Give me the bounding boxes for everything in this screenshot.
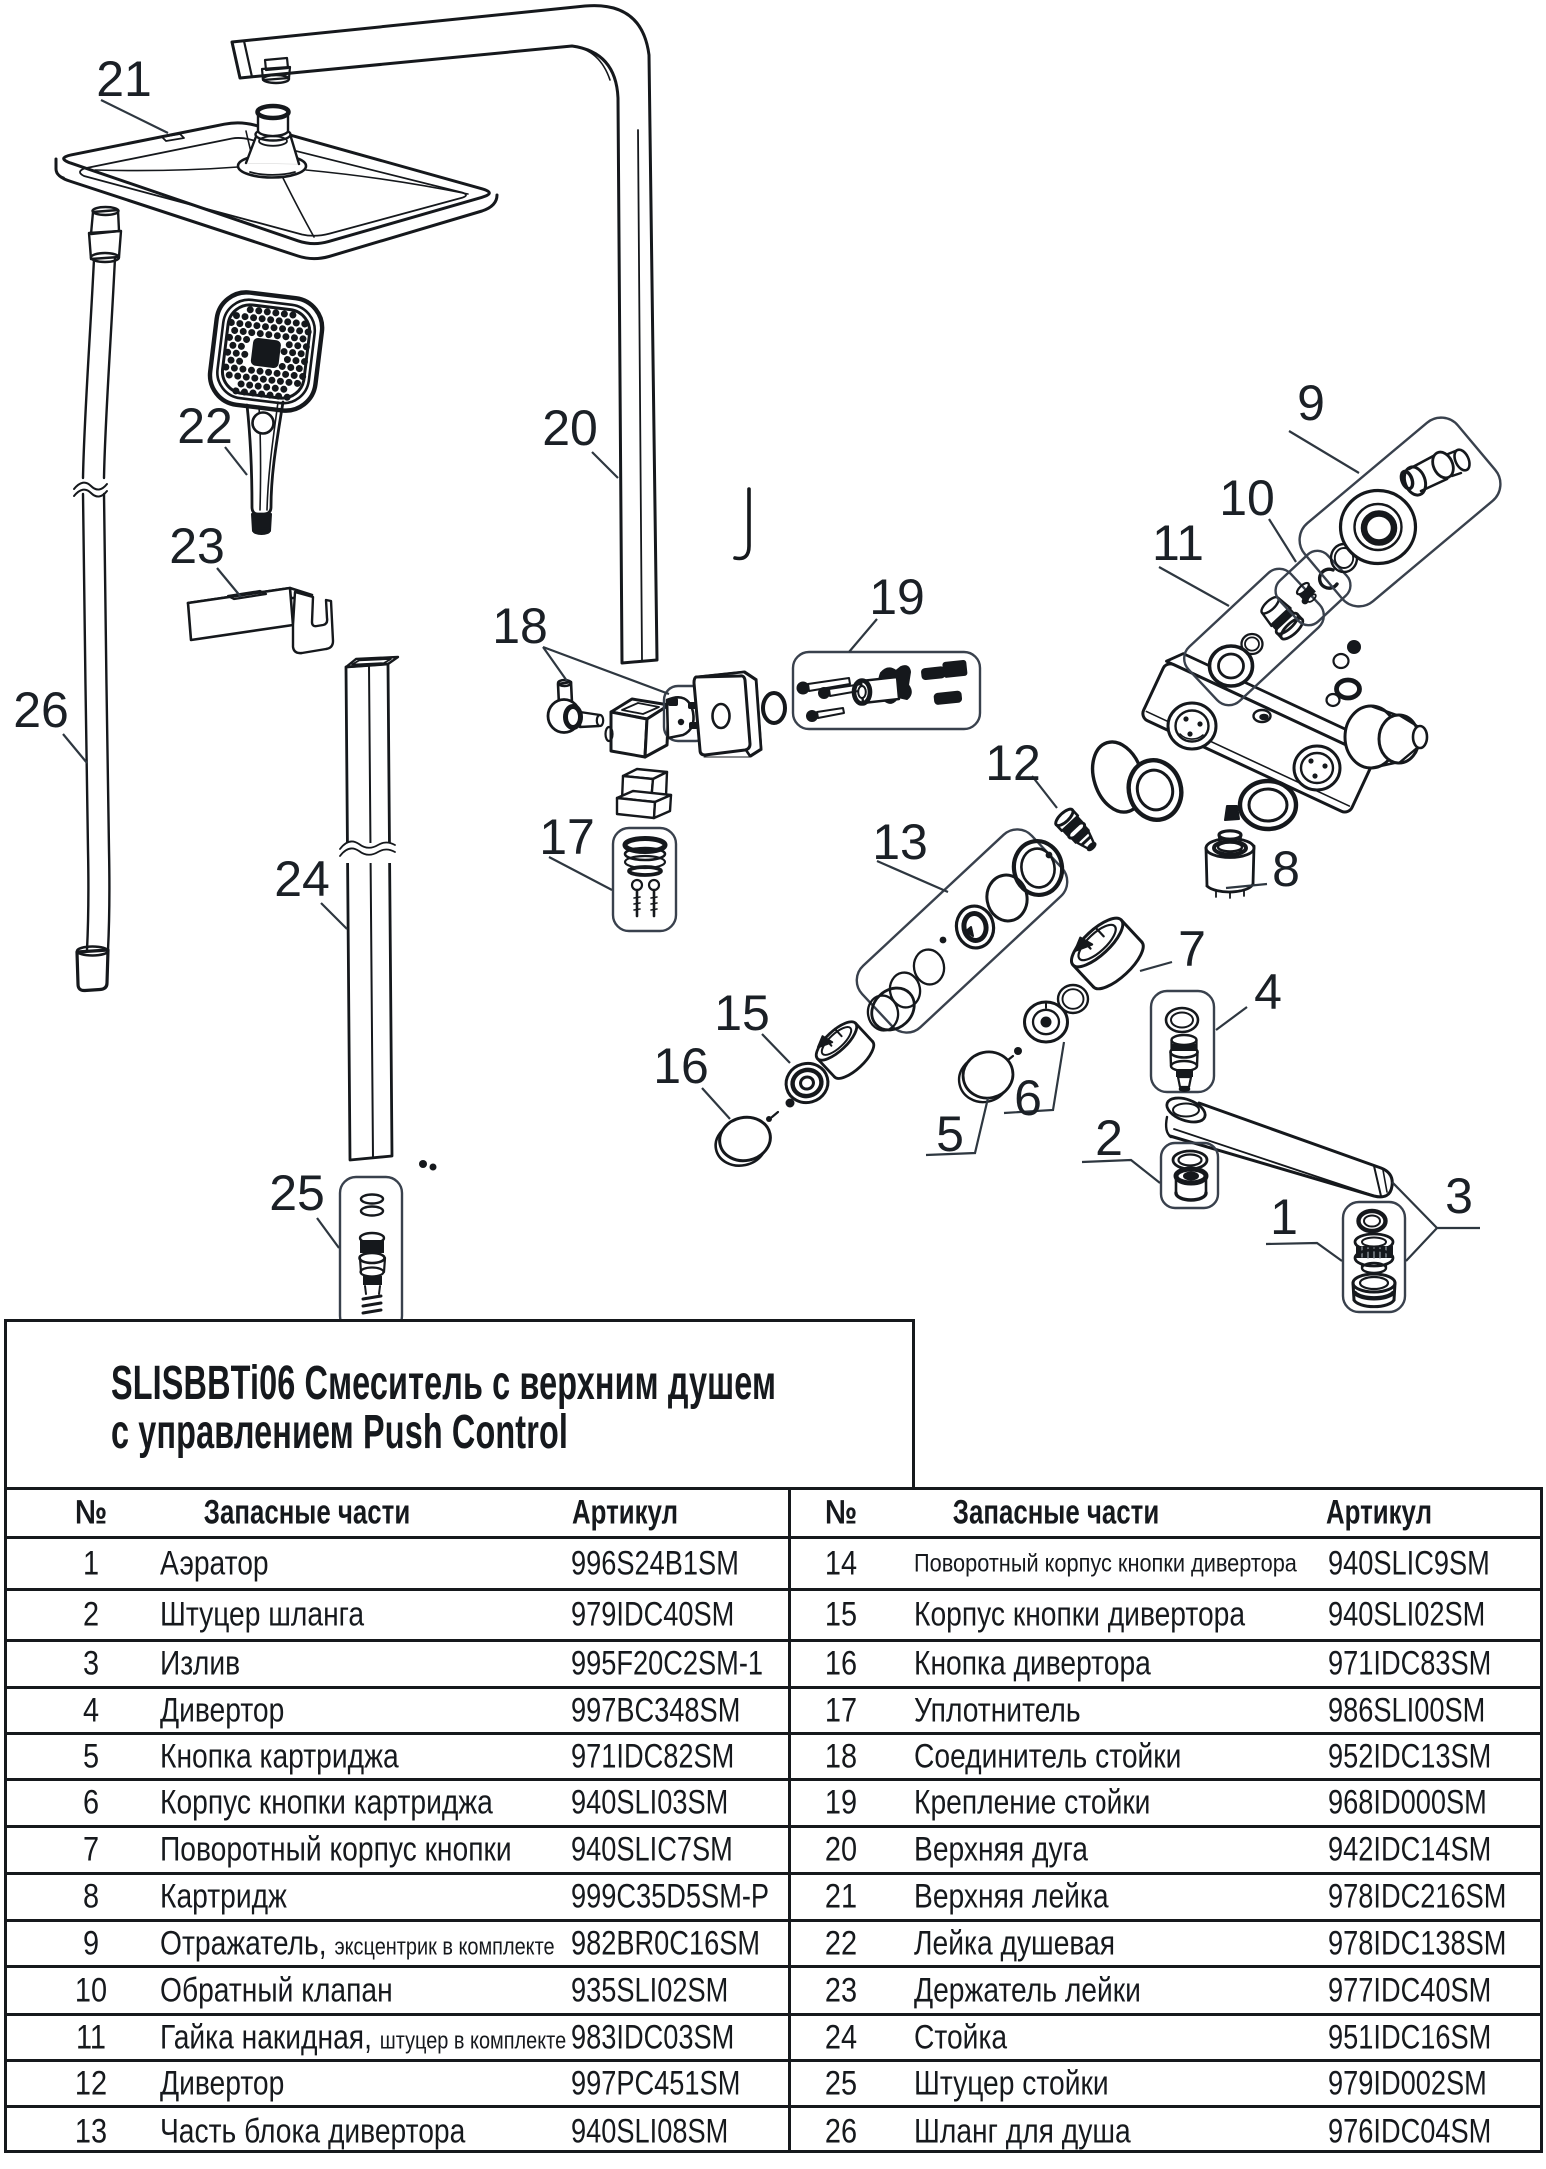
svg-text:8: 8 bbox=[1272, 841, 1300, 897]
svg-text:3: 3 bbox=[1445, 1168, 1473, 1224]
svg-text:18: 18 bbox=[492, 598, 548, 654]
svg-text:2: 2 bbox=[1095, 1110, 1123, 1166]
svg-text:9: 9 bbox=[1297, 375, 1325, 431]
svg-text:10: 10 bbox=[1219, 470, 1275, 526]
svg-text:26: 26 bbox=[13, 682, 69, 738]
svg-text:21: 21 bbox=[96, 51, 152, 107]
svg-text:16: 16 bbox=[653, 1038, 709, 1094]
svg-text:11: 11 bbox=[1152, 515, 1204, 571]
svg-text:7: 7 bbox=[1178, 921, 1206, 977]
svg-text:6: 6 bbox=[1014, 1070, 1042, 1126]
svg-text:19: 19 bbox=[869, 569, 925, 625]
svg-text:25: 25 bbox=[269, 1165, 325, 1221]
svg-text:4: 4 bbox=[1254, 964, 1282, 1020]
svg-text:24: 24 bbox=[274, 851, 330, 907]
svg-text:12: 12 bbox=[985, 735, 1041, 791]
svg-text:23: 23 bbox=[169, 518, 225, 574]
svg-text:22: 22 bbox=[177, 398, 233, 454]
svg-text:20: 20 bbox=[542, 400, 598, 456]
svg-text:5: 5 bbox=[936, 1106, 964, 1162]
svg-text:17: 17 bbox=[539, 809, 595, 865]
svg-text:13: 13 bbox=[872, 814, 928, 870]
svg-text:15: 15 bbox=[714, 985, 770, 1041]
svg-text:1: 1 bbox=[1270, 1189, 1298, 1245]
